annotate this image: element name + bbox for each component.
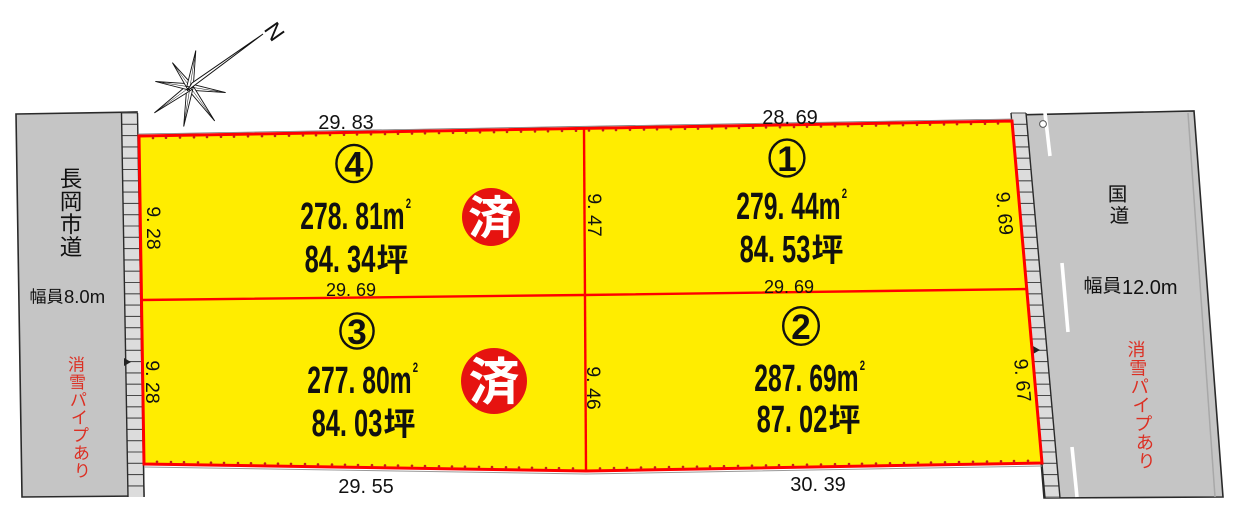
svg-text:9. 28: 9. 28	[141, 360, 163, 403]
svg-text:2: 2	[860, 357, 866, 373]
svg-text:12.0m: 12.0m	[1122, 277, 1178, 299]
svg-text:1: 1	[777, 140, 796, 179]
svg-text:279. 44m: 279. 44m	[736, 185, 840, 228]
svg-text:29. 69: 29. 69	[764, 277, 814, 297]
svg-text:278. 81m: 278. 81m	[300, 195, 404, 238]
svg-text:29. 69: 29. 69	[326, 280, 376, 300]
svg-text:29. 83: 29. 83	[318, 112, 374, 134]
svg-text:4: 4	[344, 146, 364, 185]
svg-text:2: 2	[413, 359, 419, 375]
svg-text:9. 47: 9. 47	[583, 193, 605, 236]
svg-text:84. 03: 84. 03	[312, 402, 383, 444]
svg-text:87. 02: 87. 02	[757, 398, 828, 440]
svg-text:30. 39: 30. 39	[790, 474, 846, 496]
svg-text:2: 2	[842, 185, 848, 201]
svg-text:28. 69: 28. 69	[762, 107, 818, 129]
svg-text:9. 67: 9. 67	[1009, 358, 1035, 403]
svg-text:277. 80m: 277. 80m	[307, 359, 411, 402]
svg-text:9. 28: 9. 28	[142, 206, 164, 249]
svg-text:84. 34: 84. 34	[305, 238, 376, 280]
svg-text:287. 69m: 287. 69m	[754, 357, 858, 400]
svg-text:3: 3	[347, 313, 366, 352]
svg-text:9. 46: 9. 46	[582, 366, 604, 409]
svg-text:2: 2	[406, 195, 412, 211]
svg-text:84. 53: 84. 53	[740, 228, 811, 270]
svg-text:2: 2	[791, 308, 810, 347]
svg-text:9. 69: 9. 69	[991, 191, 1017, 236]
svg-text:8.0m: 8.0m	[64, 286, 105, 307]
svg-text:29. 55: 29. 55	[338, 476, 394, 498]
